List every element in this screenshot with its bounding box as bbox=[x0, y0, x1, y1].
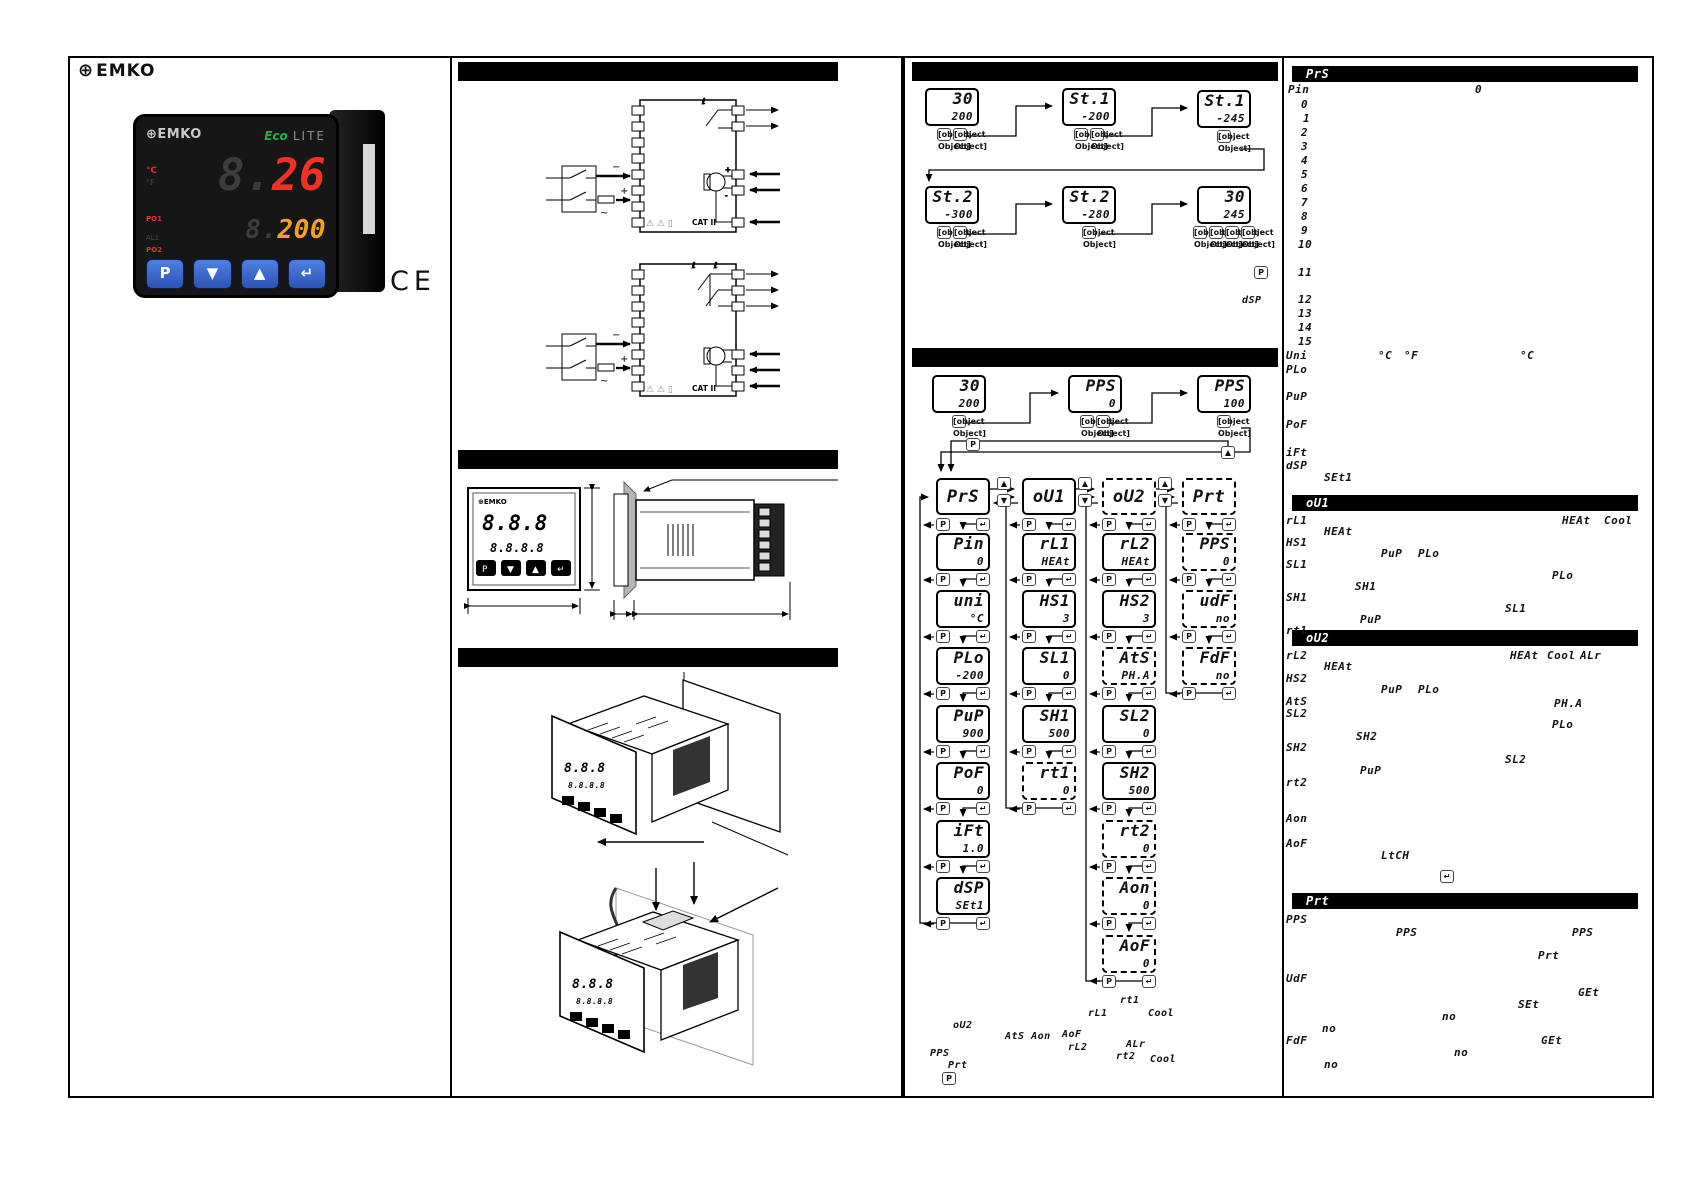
parameter-value: no bbox=[1216, 670, 1230, 681]
parameter-word: 15 bbox=[1298, 336, 1312, 347]
enter-key-button: ↵ bbox=[1142, 917, 1156, 930]
enter-key-button: ↵ bbox=[1222, 573, 1236, 586]
parameter-word: rL1 bbox=[1286, 515, 1307, 526]
parameter-name: HS2 bbox=[1120, 593, 1150, 609]
parameter-name: SL2 bbox=[1120, 708, 1150, 724]
parameter-word: 7 bbox=[1301, 197, 1308, 208]
p-key-button: P bbox=[1102, 630, 1116, 643]
parameter-word: 11 bbox=[1298, 267, 1312, 278]
parameter-word: SL2 bbox=[1286, 708, 1307, 719]
section-header-prt: Prt bbox=[1292, 893, 1638, 909]
parameter-word: SH1 bbox=[1286, 592, 1307, 603]
seg-annotation: PPS bbox=[930, 1049, 950, 1059]
up-key-button: ▲ bbox=[1078, 477, 1092, 490]
parameter-word: 6 bbox=[1301, 183, 1308, 194]
display-key-button: [object Object] bbox=[1241, 226, 1255, 239]
parameter-name: PLo bbox=[954, 650, 984, 666]
parameter-word: Aon bbox=[1286, 813, 1307, 824]
p-key-button: P bbox=[1182, 687, 1196, 700]
parameter-value: -200 bbox=[956, 670, 985, 681]
menu-parameter-item: HS2 3 P ↵ bbox=[1102, 590, 1156, 628]
seg-annotation: Cool bbox=[1148, 1009, 1174, 1019]
display-bottom-value: 200 bbox=[959, 398, 980, 409]
parameter-value: 3 bbox=[1063, 613, 1070, 624]
menu-parameter-item: rL2 HEAt P ↵ bbox=[1102, 533, 1156, 571]
parameter-word: Prt bbox=[1538, 950, 1559, 961]
parameter-value: 0 bbox=[1223, 556, 1230, 567]
parameter-word: SEt bbox=[1518, 999, 1539, 1010]
parameter-name: iFt bbox=[954, 823, 984, 839]
parameter-name: SH1 bbox=[1040, 708, 1070, 724]
parameter-name: AtS bbox=[1120, 650, 1150, 666]
seg-annotation: ALr bbox=[1126, 1040, 1146, 1050]
parameter-word: 5 bbox=[1301, 169, 1308, 180]
parameter-word: PPS bbox=[1396, 927, 1417, 938]
parameter-word: HEAt bbox=[1510, 650, 1539, 661]
parameter-word: Uni bbox=[1286, 350, 1307, 361]
menu-root-label: oU1 bbox=[1022, 478, 1076, 515]
parameter-name: SL1 bbox=[1040, 650, 1070, 666]
seven-segment-display: St.2 -280 [object Object] bbox=[1062, 186, 1116, 224]
seven-segment-display: PPS 100 [object Object] bbox=[1197, 375, 1251, 413]
parameter-value: °C bbox=[970, 613, 984, 624]
display-key-button: [object Object] bbox=[953, 128, 967, 141]
p-key-button: P bbox=[936, 745, 950, 758]
p-key-button: P bbox=[1254, 266, 1268, 279]
parameter-word: °F bbox=[1404, 350, 1418, 361]
enter-key-button: ↵ bbox=[1222, 518, 1236, 531]
section-header-ou1: oU1 bbox=[1292, 495, 1638, 511]
p-key-button: P bbox=[1182, 518, 1196, 531]
parameter-word: PLo bbox=[1418, 684, 1439, 695]
parameter-name: rL1 bbox=[1040, 536, 1070, 552]
parameter-word: 0 bbox=[1475, 84, 1482, 95]
parameter-word: Cool bbox=[1547, 650, 1576, 661]
p-key-button: P bbox=[1022, 687, 1036, 700]
parameter-word: PLo bbox=[1286, 364, 1307, 375]
parameter-name: PPS bbox=[1200, 536, 1230, 552]
p-key-button: P bbox=[936, 630, 950, 643]
display-key-button: [object Object] bbox=[1217, 415, 1231, 428]
parameter-word: °C bbox=[1520, 350, 1534, 361]
seven-segment-display: St.2 -300 [object Object][object Object] bbox=[925, 186, 979, 224]
parameter-name: SH2 bbox=[1120, 765, 1150, 781]
parameter-value: HEAt bbox=[1122, 556, 1151, 567]
menu-parameter-item: PPS 0 P ↵ bbox=[1182, 533, 1236, 571]
parameter-word: 3 bbox=[1301, 141, 1308, 152]
parameter-word: PuP bbox=[1381, 684, 1402, 695]
parameter-word: PLo bbox=[1418, 548, 1439, 559]
parameter-word: 4 bbox=[1301, 155, 1308, 166]
up-key-button: ▲ bbox=[1158, 477, 1172, 490]
display-bottom-value: 0 bbox=[1109, 398, 1116, 409]
enter-key-button: ↵ bbox=[1142, 630, 1156, 643]
menu-parameter-item: AtS PH.A P ↵ bbox=[1102, 647, 1156, 685]
menu-parameter-item: FdF no P ↵ bbox=[1182, 647, 1236, 685]
p-key-button: P bbox=[1102, 860, 1116, 873]
parameter-name: Aon bbox=[1120, 880, 1150, 896]
parameter-word: 1 bbox=[1303, 113, 1310, 124]
parameter-value: 0 bbox=[1063, 785, 1070, 796]
display-bottom-value: -200 bbox=[1082, 111, 1111, 122]
parameter-word: GEt bbox=[1578, 987, 1599, 998]
parameter-word: 8 bbox=[1301, 211, 1308, 222]
p-key-button: P bbox=[1022, 745, 1036, 758]
enter-key-button: ↵ bbox=[976, 860, 990, 873]
p-key-button: P bbox=[936, 687, 950, 700]
display-top-value: St.2 bbox=[1069, 189, 1110, 205]
parameter-word: PuP bbox=[1381, 548, 1402, 559]
parameter-word: ALr bbox=[1580, 650, 1601, 661]
parameter-word: LtCH bbox=[1381, 850, 1410, 861]
parameter-word: no bbox=[1454, 1047, 1468, 1058]
parameter-word: PPS bbox=[1572, 927, 1593, 938]
p-key-button: P bbox=[1102, 518, 1116, 531]
p-key-button: P bbox=[1182, 630, 1196, 643]
parameter-value: 0 bbox=[1143, 900, 1150, 911]
parameter-name: uni bbox=[954, 593, 984, 609]
parameter-word: PuP bbox=[1360, 765, 1381, 776]
parameter-value: no bbox=[1216, 613, 1230, 624]
display-key-button: [object Object] bbox=[937, 128, 951, 141]
menu-parameter-item: dSP SEt1 P ↵ bbox=[936, 877, 990, 915]
parameter-word: PLo bbox=[1552, 719, 1573, 730]
p-key-button: P bbox=[1102, 687, 1116, 700]
parameter-word: AtS bbox=[1286, 696, 1307, 707]
enter-key-button: ↵ bbox=[1142, 573, 1156, 586]
enter-key-button: ↵ bbox=[976, 687, 990, 700]
menu-parameter-item: iFt 1.0 P ↵ bbox=[936, 820, 990, 858]
display-key-button: [object Object] bbox=[1090, 128, 1104, 141]
parameter-word: 12 bbox=[1298, 294, 1312, 305]
seven-segment-display: 30 200 [object Object][object Object] bbox=[925, 88, 979, 126]
enter-key-button: ↵ bbox=[1062, 573, 1076, 586]
parameter-word: PLo bbox=[1552, 570, 1573, 581]
parameter-value: 0 bbox=[1143, 958, 1150, 969]
down-key-button: ▼ bbox=[1078, 494, 1092, 507]
enter-key-button: ↵ bbox=[1142, 518, 1156, 531]
display-key-button: [object Object] bbox=[1074, 128, 1088, 141]
menu-parameter-item: PuP 900 P ↵ bbox=[936, 705, 990, 743]
parameter-word: 14 bbox=[1298, 322, 1312, 333]
p-key-button: P bbox=[1022, 518, 1036, 531]
parameter-word: rt1 bbox=[1286, 625, 1307, 636]
enter-key-button: ↵ bbox=[1062, 518, 1076, 531]
up-key-button: ▲ bbox=[1221, 446, 1235, 459]
parameter-word: dSP bbox=[1286, 460, 1307, 471]
enter-key-button: ↵ bbox=[1062, 802, 1076, 815]
menu-root: PrS P ↵ bbox=[936, 478, 990, 515]
seg-annotation: rL2 bbox=[1068, 1043, 1088, 1053]
display-key-button: [object Object] bbox=[952, 415, 966, 428]
p-key-button: P bbox=[1022, 630, 1036, 643]
connector-layer bbox=[0, 0, 1684, 1191]
parameter-word: HEAt bbox=[1562, 515, 1591, 526]
menu-parameter-item: rt2 0 P ↵ bbox=[1102, 820, 1156, 858]
display-top-value: St.1 bbox=[1204, 93, 1245, 109]
enter-key-button: ↵ bbox=[976, 630, 990, 643]
menu-parameter-item: SH1 500 P ↵ bbox=[1022, 705, 1076, 743]
parameter-word: SH2 bbox=[1356, 731, 1377, 742]
enter-key-button: ↵ bbox=[1062, 745, 1076, 758]
p-key-button: P bbox=[1102, 975, 1116, 988]
display-top-value: 30 bbox=[960, 378, 980, 394]
menu-parameter-item: SL2 0 P ↵ bbox=[1102, 705, 1156, 743]
dsp-note: dSP bbox=[1242, 296, 1262, 306]
display-top-value: PPS bbox=[1086, 378, 1116, 394]
parameter-word: PoF bbox=[1286, 419, 1307, 430]
display-key-button: [object Object] bbox=[1096, 415, 1110, 428]
parameter-word: 9 bbox=[1301, 225, 1308, 236]
parameter-word: SL2 bbox=[1505, 754, 1526, 765]
parameter-word: no bbox=[1322, 1023, 1336, 1034]
display-key-button: [object Object] bbox=[1193, 226, 1207, 239]
parameter-word: no bbox=[1442, 1011, 1456, 1022]
parameter-word: SH2 bbox=[1286, 742, 1307, 753]
parameter-word: SL1 bbox=[1286, 559, 1307, 570]
menu-root-label: Prt bbox=[1182, 478, 1236, 515]
enter-key-button: ↵ bbox=[1142, 860, 1156, 873]
parameter-name: FdF bbox=[1200, 650, 1230, 666]
menu-root: oU2 P ↵ bbox=[1102, 478, 1156, 515]
parameter-value: 500 bbox=[1049, 728, 1070, 739]
p-key-button: P bbox=[1182, 573, 1196, 586]
parameter-word: Cool bbox=[1604, 515, 1633, 526]
display-key-button: [object Object] bbox=[953, 226, 967, 239]
display-bottom-value: 200 bbox=[952, 111, 973, 122]
enter-key-button: ↵ bbox=[1222, 630, 1236, 643]
enter-key-button: ↵ bbox=[1142, 687, 1156, 700]
display-top-value: PPS bbox=[1215, 378, 1245, 394]
parameter-name: AoF bbox=[1120, 938, 1150, 954]
parameter-value: 0 bbox=[1143, 728, 1150, 739]
parameter-name: PuP bbox=[954, 708, 984, 724]
parameter-name: PoF bbox=[954, 765, 984, 781]
menu-parameter-item: PoF 0 P ↵ bbox=[936, 762, 990, 800]
enter-key-button: ↵ bbox=[1142, 802, 1156, 815]
p-key-button: P bbox=[936, 860, 950, 873]
seg-annotation: rL1 bbox=[1088, 1009, 1108, 1019]
display-key-button: [object Object] bbox=[1217, 130, 1231, 143]
parameter-word: rt2 bbox=[1286, 777, 1307, 788]
parameter-word: GEt bbox=[1541, 1035, 1562, 1046]
seg-annotation: oU2 bbox=[953, 1021, 973, 1031]
p-key-button: P bbox=[1102, 745, 1116, 758]
parameter-name: rL2 bbox=[1120, 536, 1150, 552]
enter-key-button: ↵ bbox=[1222, 687, 1236, 700]
parameter-word: PuP bbox=[1286, 391, 1307, 402]
menu-parameter-item: PLo -200 P ↵ bbox=[936, 647, 990, 685]
parameter-word: PuP bbox=[1360, 614, 1381, 625]
display-key-button: [object Object] bbox=[937, 226, 951, 239]
display-bottom-value: -245 bbox=[1217, 113, 1246, 124]
menu-root: oU1 P ↵ bbox=[1022, 478, 1076, 515]
parameter-word: rL2 bbox=[1286, 650, 1307, 661]
menu-root: Prt P ↵ bbox=[1182, 478, 1236, 515]
enter-key-button: ↵ bbox=[1062, 687, 1076, 700]
seg-annotation: Prt bbox=[948, 1061, 968, 1071]
parameter-value: 1.0 bbox=[963, 843, 984, 854]
menu-parameter-item: rL1 HEAt P ↵ bbox=[1022, 533, 1076, 571]
seven-segment-display: 30 200 [object Object] bbox=[932, 375, 986, 413]
enter-key-button: ↵ bbox=[976, 745, 990, 758]
section-header-prs: PrS bbox=[1292, 66, 1638, 82]
p-key-button: P bbox=[1022, 573, 1036, 586]
enter-key-button: ↵ bbox=[976, 573, 990, 586]
down-key-button: ▼ bbox=[997, 494, 1011, 507]
p-key-button: P bbox=[936, 802, 950, 815]
parameter-value: 0 bbox=[977, 785, 984, 796]
parameter-value: 3 bbox=[1143, 613, 1150, 624]
parameter-word: SEt1 bbox=[1324, 472, 1353, 483]
seg-annotation: AoF bbox=[1062, 1030, 1082, 1040]
display-bottom-value: 245 bbox=[1224, 209, 1245, 220]
display-key-button: [object Object] bbox=[1209, 226, 1223, 239]
menu-root-label: PrS bbox=[936, 478, 990, 515]
parameter-name: udF bbox=[1200, 593, 1230, 609]
parameter-word: AoF bbox=[1286, 838, 1307, 849]
parameter-word: 0 bbox=[1301, 99, 1308, 110]
menu-parameter-item: AoF 0 P ↵ bbox=[1102, 935, 1156, 973]
parameter-word: Pin bbox=[1288, 84, 1309, 95]
section-header-ou2: oU2 bbox=[1292, 630, 1638, 646]
parameter-name: dSP bbox=[954, 880, 984, 896]
enter-key-button: ↵ bbox=[976, 518, 990, 531]
seg-annotation: Cool bbox=[1150, 1055, 1176, 1065]
display-key-button: [object Object] bbox=[1225, 226, 1239, 239]
p-key-button: P bbox=[1022, 802, 1036, 815]
p-key-button: P bbox=[936, 573, 950, 586]
parameter-name: HS1 bbox=[1040, 593, 1070, 609]
enter-key-button: ↵ bbox=[1142, 745, 1156, 758]
parameter-word: FdF bbox=[1286, 1035, 1307, 1046]
p-key-button: P bbox=[1102, 802, 1116, 815]
parameter-value: 0 bbox=[1143, 843, 1150, 854]
parameter-value: SEt1 bbox=[956, 900, 985, 911]
parameter-word: PPS bbox=[1286, 914, 1307, 925]
enter-key-button: ↵ bbox=[976, 802, 990, 815]
parameter-word: UdF bbox=[1286, 973, 1307, 984]
menu-parameter-item: Aon 0 P ↵ bbox=[1102, 877, 1156, 915]
menu-parameter-item: Pin 0 P ↵ bbox=[936, 533, 990, 571]
p-key-button: P bbox=[942, 1072, 956, 1085]
parameter-value: PH.A bbox=[1122, 670, 1151, 681]
enter-key-button: ↵ bbox=[1142, 975, 1156, 988]
parameter-word: HS1 bbox=[1286, 537, 1307, 548]
parameter-value: 0 bbox=[977, 556, 984, 567]
menu-root-label: oU2 bbox=[1102, 478, 1156, 515]
parameter-word: PH.A bbox=[1554, 698, 1583, 709]
p-key-button: P bbox=[966, 438, 980, 451]
parameter-word: HS2 bbox=[1286, 673, 1307, 684]
parameter-name: rt1 bbox=[1040, 765, 1070, 781]
menu-parameter-item: SL1 0 P ↵ bbox=[1022, 647, 1076, 685]
parameter-word: HEAt bbox=[1324, 661, 1353, 672]
seven-segment-display: 30 245 [object Object][object Object][ob… bbox=[1197, 186, 1251, 224]
display-bottom-value: 100 bbox=[1224, 398, 1245, 409]
display-top-value: 30 bbox=[1225, 189, 1245, 205]
p-key-button: P bbox=[936, 917, 950, 930]
seven-segment-display: St.1 -245 [object Object] bbox=[1197, 90, 1251, 128]
seg-annotation: rt1 bbox=[1120, 996, 1140, 1006]
down-key-button: ▼ bbox=[1158, 494, 1172, 507]
enter-key-button: ↵ bbox=[1062, 630, 1076, 643]
parameter-name: rt2 bbox=[1120, 823, 1150, 839]
p-key-button: P bbox=[936, 518, 950, 531]
display-bottom-value: -300 bbox=[945, 209, 974, 220]
parameter-word: °C bbox=[1378, 350, 1392, 361]
display-key-button: [object Object] bbox=[1080, 415, 1094, 428]
menu-parameter-item: HS1 3 P ↵ bbox=[1022, 590, 1076, 628]
seg-annotation: rt2 bbox=[1116, 1052, 1136, 1062]
parameter-value: 500 bbox=[1129, 785, 1150, 796]
p-key-button: P bbox=[1102, 917, 1116, 930]
parameter-word: iFt bbox=[1286, 447, 1307, 458]
menu-parameter-item: rt1 0 P ↵ bbox=[1022, 762, 1076, 800]
parameter-word: no bbox=[1324, 1059, 1338, 1070]
parameter-word: SH1 bbox=[1355, 581, 1376, 592]
display-key-button: [object Object] bbox=[1082, 226, 1096, 239]
enter-key-button: ↵ bbox=[1440, 870, 1454, 883]
menu-parameter-item: udF no P ↵ bbox=[1182, 590, 1236, 628]
up-key-button: ▲ bbox=[997, 477, 1011, 490]
parameter-word: 10 bbox=[1298, 239, 1312, 250]
parameter-name: Pin bbox=[954, 536, 984, 552]
seven-segment-display: PPS 0 [object Object][object Object] bbox=[1068, 375, 1122, 413]
parameter-word: SL1 bbox=[1505, 603, 1526, 614]
display-bottom-value: -280 bbox=[1082, 209, 1111, 220]
seg-annotation: AtS Aon bbox=[1005, 1032, 1051, 1042]
parameter-value: 0 bbox=[1063, 670, 1070, 681]
seven-segment-display: St.1 -200 [object Object][object Object] bbox=[1062, 88, 1116, 126]
display-top-value: 30 bbox=[953, 91, 973, 107]
display-top-value: St.2 bbox=[932, 189, 973, 205]
parameter-value: 900 bbox=[963, 728, 984, 739]
parameter-word: 2 bbox=[1301, 127, 1308, 138]
parameter-word: HEAt bbox=[1324, 526, 1353, 537]
display-top-value: St.1 bbox=[1069, 91, 1110, 107]
enter-key-button: ↵ bbox=[976, 917, 990, 930]
menu-parameter-item: SH2 500 P ↵ bbox=[1102, 762, 1156, 800]
p-key-button: P bbox=[1102, 573, 1116, 586]
menu-parameter-item: uni °C P ↵ bbox=[936, 590, 990, 628]
parameter-word: 13 bbox=[1298, 308, 1312, 319]
parameter-value: HEAt bbox=[1042, 556, 1071, 567]
